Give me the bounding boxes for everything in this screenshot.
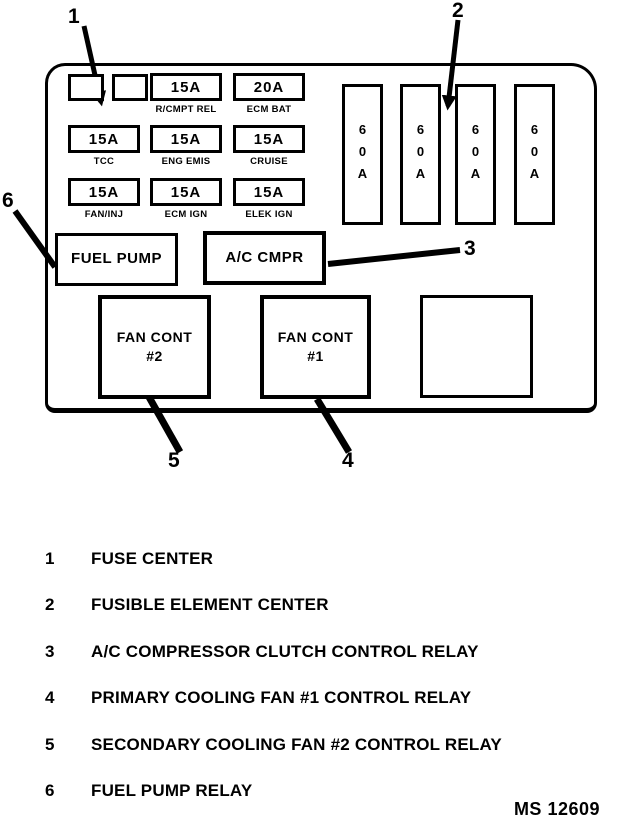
callout-4: 4 [342,450,354,471]
figure-code: MS 12609 [514,799,600,820]
fusible-element-2: 60A [400,84,441,225]
fuse-label: ECM IGN [150,209,222,220]
fuse-label: ENG EMIS [150,156,222,167]
fan-control-2-label-line2: #2 [146,347,163,366]
fuse-amp: 15A [68,178,140,206]
legend-number: 3 [45,642,91,662]
legend-number: 5 [45,735,91,755]
fuse-ecm-bat: 20A ECM BAT [233,73,305,115]
callout-2: 2 [452,0,464,21]
fuse-amp: 15A [150,125,222,153]
legend-label: A/C COMPRESSOR CLUTCH CONTROL RELAY [91,642,479,661]
fuse-amp: 15A [150,178,222,206]
legend-item-1: 1FUSE CENTER [45,549,213,569]
legend-item-6: 6FUEL PUMP RELAY [45,781,252,801]
callout-3: 3 [464,238,476,259]
legend-label: FUSE CENTER [91,549,213,568]
fuse-amp: 15A [233,125,305,153]
empty-relay-slot [420,295,533,398]
fan-control-1-relay-box: FAN CONT #1 [260,295,371,399]
fuel-pump-relay-box: FUEL PUMP [55,233,178,286]
fusible-element-4: 60A [514,84,555,225]
fuse-cruise: 15A CRUISE [233,125,305,167]
legend-number: 2 [45,595,91,615]
fusible-element-amp: 60A [528,122,541,188]
fan-control-1-label-line2: #1 [307,347,324,366]
legend-label: PRIMARY COOLING FAN #1 CONTROL RELAY [91,688,471,707]
legend-item-2: 2FUSIBLE ELEMENT CENTER [45,595,329,615]
fuse-label: ELEK IGN [233,209,305,220]
fuse-label: TCC [68,156,140,167]
fuse-eng-emis: 15A ENG EMIS [150,125,222,167]
fuse-ecm-ign: 15A ECM IGN [150,178,222,220]
fusible-element-amp: 60A [356,122,369,188]
legend-number: 6 [45,781,91,801]
fuse-label: CRUISE [233,156,305,167]
callout-6: 6 [2,190,14,211]
ac-compressor-relay-box: A/C CMPR [203,231,326,285]
fuse-relay-diagram: 15A R/CMPT REL 20A ECM BAT 15A TCC 15A E… [0,0,624,832]
fuse-amp: 20A [233,73,305,101]
fuse-tcc: 15A TCC [68,125,140,167]
fuse-amp: 15A [150,73,222,101]
empty-fuse-slot [68,74,104,101]
legend-label: FUSIBLE ELEMENT CENTER [91,595,329,614]
fan-control-2-relay-box: FAN CONT #2 [98,295,211,399]
callout-5: 5 [168,450,180,471]
empty-fuse-slot [112,74,148,101]
fusible-element-amp: 60A [414,122,427,188]
fan-control-1-label-line1: FAN CONT [278,328,354,347]
legend-item-4: 4PRIMARY COOLING FAN #1 CONTROL RELAY [45,688,471,708]
legend-label: SECONDARY COOLING FAN #2 CONTROL RELAY [91,735,502,754]
fuse-amp: 15A [68,125,140,153]
legend-item-3: 3A/C COMPRESSOR CLUTCH CONTROL RELAY [45,642,479,662]
fusible-element-1: 60A [342,84,383,225]
fuse-elek-ign: 15A ELEK IGN [233,178,305,220]
fuse-amp: 15A [233,178,305,206]
fusible-element-3: 60A [455,84,496,225]
ac-compressor-relay-label: A/C CMPR [225,248,303,268]
legend-number: 1 [45,549,91,569]
fuse-label: R/CMPT REL [150,104,222,115]
fan-control-2-label-line1: FAN CONT [117,328,193,347]
legend-label: FUEL PUMP RELAY [91,781,252,800]
legend-number: 4 [45,688,91,708]
fuse-label: ECM BAT [233,104,305,115]
fuse-fan-inj: 15A FAN/INJ [68,178,140,220]
callout-1: 1 [68,6,80,27]
fusible-element-amp: 60A [469,122,482,188]
fuel-pump-relay-label: FUEL PUMP [71,249,162,269]
fuse-label: FAN/INJ [68,209,140,220]
fuse-rcmpt-rel: 15A R/CMPT REL [150,73,222,115]
legend-item-5: 5SECONDARY COOLING FAN #2 CONTROL RELAY [45,735,502,755]
